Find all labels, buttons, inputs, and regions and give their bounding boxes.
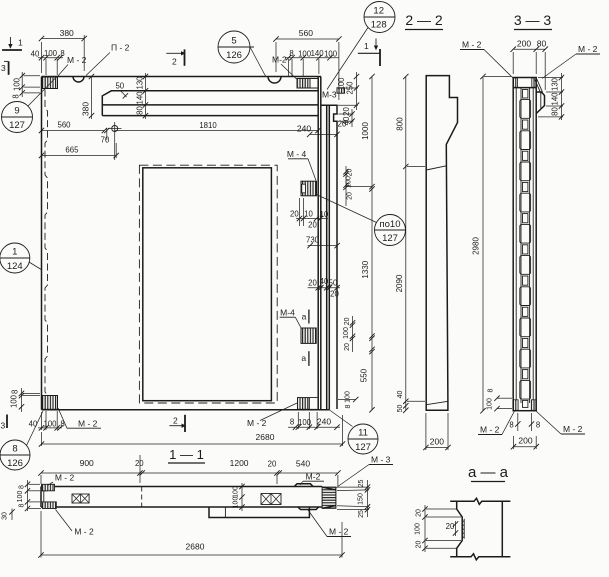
svg-text:140: 140 <box>551 92 560 106</box>
svg-text:М - 2: М - 2 <box>462 40 482 50</box>
svg-text:127: 127 <box>355 442 371 453</box>
svg-text:380: 380 <box>60 28 74 38</box>
svg-text:100: 100 <box>43 420 57 429</box>
svg-text:3 — 3: 3 — 3 <box>514 12 552 28</box>
svg-text:100: 100 <box>487 398 494 410</box>
svg-text:140: 140 <box>136 91 145 105</box>
svg-text:3: 3 <box>1 63 6 73</box>
svg-text:100: 100 <box>13 77 22 91</box>
svg-text:1 — 1: 1 — 1 <box>169 447 204 462</box>
svg-text:20: 20 <box>347 169 354 177</box>
svg-text:а: а <box>301 353 306 363</box>
svg-text:25: 25 <box>358 480 365 488</box>
svg-text:М - 2: М - 2 <box>67 55 87 65</box>
svg-text:100: 100 <box>233 497 240 509</box>
svg-text:100: 100 <box>298 418 312 427</box>
svg-text:25: 25 <box>358 510 365 518</box>
svg-text:1330: 1330 <box>361 260 370 278</box>
svg-text:8: 8 <box>536 421 540 430</box>
svg-text:10: 10 <box>320 210 329 219</box>
svg-text:200: 200 <box>430 437 444 447</box>
svg-text:20: 20 <box>308 221 317 230</box>
svg-text:730: 730 <box>306 236 320 245</box>
svg-text:1: 1 <box>364 41 369 51</box>
svg-text:20: 20 <box>338 120 347 129</box>
svg-text:а: а <box>302 311 307 321</box>
svg-text:20: 20 <box>342 107 351 116</box>
svg-text:М-2: М-2 <box>306 472 321 482</box>
svg-text:200: 200 <box>518 436 532 446</box>
svg-text:380: 380 <box>81 102 91 116</box>
svg-text:8: 8 <box>60 49 64 58</box>
svg-text:М-3: М-3 <box>322 90 337 100</box>
svg-text:100: 100 <box>415 523 422 535</box>
svg-text:П - 2: П - 2 <box>111 43 130 53</box>
svg-text:240: 240 <box>297 123 311 133</box>
svg-text:50: 50 <box>115 81 124 90</box>
svg-text:140: 140 <box>311 49 325 58</box>
svg-text:40: 40 <box>31 50 40 59</box>
svg-text:8: 8 <box>290 418 294 427</box>
svg-text:М - 2: М - 2 <box>55 473 75 483</box>
svg-text:20: 20 <box>135 459 144 468</box>
svg-text:100: 100 <box>324 50 338 59</box>
svg-text:8: 8 <box>289 49 293 58</box>
svg-text:70: 70 <box>101 136 110 145</box>
svg-text:240: 240 <box>317 417 331 427</box>
svg-text:20: 20 <box>268 459 277 468</box>
svg-text:2680: 2680 <box>256 432 275 442</box>
svg-text:550: 550 <box>360 368 369 382</box>
svg-text:8: 8 <box>19 503 26 507</box>
svg-text:20: 20 <box>347 192 354 200</box>
svg-text:М-2: М-2 <box>272 55 287 65</box>
svg-text:128: 128 <box>371 20 387 31</box>
svg-text:127: 127 <box>382 233 398 244</box>
svg-text:М - 4: М - 4 <box>287 149 307 159</box>
svg-text:560: 560 <box>57 121 71 130</box>
svg-text:130: 130 <box>551 77 560 91</box>
svg-text:М - 2: М - 2 <box>329 527 349 537</box>
svg-text:20: 20 <box>416 541 423 549</box>
svg-text:20: 20 <box>308 279 317 288</box>
svg-text:8: 8 <box>12 444 17 455</box>
svg-text:540: 540 <box>296 458 310 468</box>
svg-text:100: 100 <box>343 327 350 339</box>
svg-text:М - 2: М - 2 <box>578 44 598 54</box>
svg-text:30: 30 <box>2 512 9 520</box>
svg-text:а — а: а — а <box>468 464 509 481</box>
svg-text:2 — 2: 2 — 2 <box>405 12 443 28</box>
svg-text:М-4: М-4 <box>280 308 295 318</box>
svg-text:665: 665 <box>65 146 79 155</box>
svg-text:20: 20 <box>416 509 423 517</box>
svg-text:80: 80 <box>551 107 560 116</box>
svg-text:126: 126 <box>226 50 242 61</box>
svg-text:800: 800 <box>396 117 405 131</box>
svg-text:126: 126 <box>7 458 23 469</box>
svg-text:100: 100 <box>17 491 24 503</box>
svg-text:20: 20 <box>344 343 351 351</box>
svg-text:12: 12 <box>373 6 384 17</box>
svg-text:2980: 2980 <box>472 237 481 255</box>
svg-text:1000: 1000 <box>361 122 370 140</box>
svg-text:8: 8 <box>12 94 21 98</box>
svg-text:100: 100 <box>345 391 352 403</box>
svg-text:10: 10 <box>304 209 313 218</box>
svg-text:1810: 1810 <box>199 121 217 130</box>
svg-text:8: 8 <box>11 390 20 394</box>
svg-text:5: 5 <box>231 36 236 47</box>
svg-text:150: 150 <box>358 493 365 505</box>
svg-text:124: 124 <box>7 261 23 272</box>
svg-text:2680: 2680 <box>186 542 205 552</box>
svg-text:М - 2: М - 2 <box>74 527 94 537</box>
svg-text:8: 8 <box>488 388 495 392</box>
svg-text:8: 8 <box>509 421 513 430</box>
svg-text:3: 3 <box>1 421 6 431</box>
svg-text:М - 2: М - 2 <box>247 418 267 428</box>
svg-text:2: 2 <box>173 416 178 426</box>
svg-text:8: 8 <box>345 404 352 408</box>
svg-text:100: 100 <box>346 176 353 188</box>
svg-text:по10: по10 <box>380 219 401 230</box>
svg-text:1: 1 <box>12 247 17 258</box>
svg-text:50: 50 <box>329 279 338 288</box>
svg-text:М - 3: М - 3 <box>371 455 391 465</box>
svg-text:40: 40 <box>397 391 404 399</box>
svg-text:130: 130 <box>136 76 145 90</box>
svg-text:8: 8 <box>19 485 26 489</box>
svg-text:2090: 2090 <box>395 274 404 292</box>
svg-text:М - 2: М - 2 <box>563 424 583 434</box>
svg-text:80: 80 <box>136 106 145 115</box>
svg-text:100: 100 <box>10 394 19 408</box>
svg-text:М - 2: М - 2 <box>78 419 98 429</box>
svg-text:80: 80 <box>537 39 547 49</box>
svg-text:20: 20 <box>290 210 299 219</box>
svg-text:1: 1 <box>18 38 23 48</box>
svg-text:9: 9 <box>14 106 19 117</box>
svg-text:100: 100 <box>233 486 240 498</box>
svg-text:1200: 1200 <box>230 458 249 468</box>
svg-text:2: 2 <box>172 57 177 67</box>
svg-text:50: 50 <box>397 405 404 413</box>
svg-text:М - 2: М - 2 <box>480 425 500 435</box>
svg-text:20: 20 <box>330 290 339 299</box>
svg-text:100: 100 <box>44 49 58 58</box>
svg-text:250: 250 <box>346 81 355 95</box>
svg-text:20: 20 <box>344 317 351 325</box>
svg-text:40: 40 <box>320 277 329 286</box>
svg-text:560: 560 <box>299 28 313 38</box>
svg-text:127: 127 <box>9 120 25 131</box>
svg-text:11: 11 <box>358 428 368 439</box>
svg-text:200: 200 <box>517 39 531 49</box>
svg-text:900: 900 <box>80 458 94 468</box>
